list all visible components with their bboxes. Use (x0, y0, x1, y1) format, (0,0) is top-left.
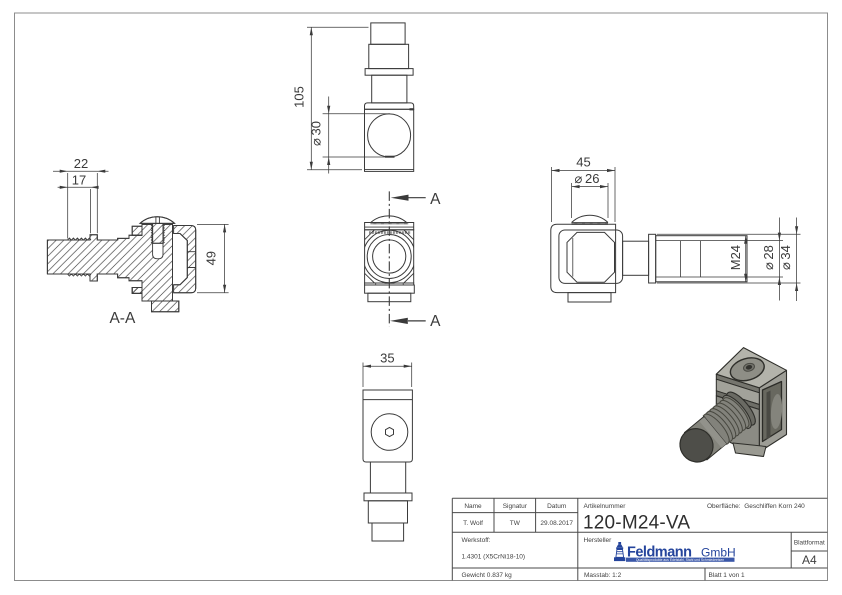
svg-text:⌀ 30: ⌀ 30 (309, 121, 324, 146)
svg-text:22: 22 (74, 156, 88, 171)
svg-text:M24: M24 (728, 245, 743, 270)
svg-text:Artikelnummer: Artikelnummer (584, 503, 627, 510)
svg-text:⌀ 28: ⌀ 28 (761, 245, 776, 270)
svg-text:Signatur: Signatur (503, 503, 528, 510)
svg-text:17: 17 (72, 172, 86, 187)
svg-text:Datum: Datum (547, 503, 566, 510)
svg-text:A: A (430, 313, 441, 330)
svg-text:45: 45 (576, 155, 590, 170)
svg-text:Oberfläche: Geschliffen Korn: Oberfläche: Geschliffen Korn 240 (707, 503, 805, 510)
svg-text:A4: A4 (802, 553, 817, 567)
svg-text:Gewicht 0.837 kg: Gewicht 0.837 kg (462, 572, 513, 579)
svg-text:Blattformat: Blattformat (794, 540, 825, 547)
svg-text:49: 49 (204, 251, 219, 265)
svg-text:⌀ 34: ⌀ 34 (778, 245, 793, 270)
svg-text:1.4301 (X5CrNi18-10): 1.4301 (X5CrNi18-10) (462, 554, 526, 561)
svg-text:A: A (430, 191, 441, 208)
svg-text:Werkstoff:: Werkstoff: (462, 537, 491, 544)
svg-text:120-M24-VA: 120-M24-VA (583, 513, 690, 534)
svg-text:35: 35 (380, 350, 394, 365)
svg-text:Blatt 1 von 1: Blatt 1 von 1 (709, 572, 746, 579)
svg-text:Name: Name (464, 503, 482, 510)
svg-text:A-A: A-A (109, 310, 136, 327)
svg-text:105: 105 (291, 86, 306, 108)
svg-text:Masstab: 1:2: Masstab: 1:2 (584, 572, 622, 579)
svg-text:Hersteller: Hersteller (584, 537, 613, 544)
svg-text:29.08.2017: 29.08.2017 (540, 520, 573, 527)
svg-text:Qualitätsprodukte aus Edelstah: Qualitätsprodukte aus Edelstahl, Stahl u… (636, 558, 724, 562)
svg-text:T. Wolf: T. Wolf (463, 520, 483, 527)
svg-text:⌀ 26: ⌀ 26 (575, 171, 600, 186)
svg-text:TW: TW (510, 520, 521, 527)
